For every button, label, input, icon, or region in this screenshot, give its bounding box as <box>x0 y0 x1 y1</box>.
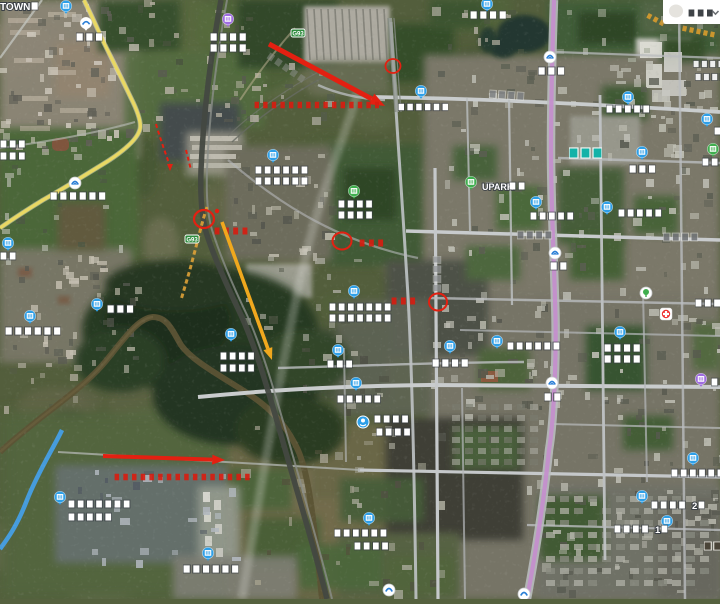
svg-text:2: 2 <box>692 501 697 512</box>
svg-text:G93: G93 <box>292 31 304 37</box>
svg-text:1: 1 <box>655 525 661 536</box>
svg-text:TOWN: TOWN <box>0 2 30 13</box>
svg-text:G93: G93 <box>186 237 198 243</box>
